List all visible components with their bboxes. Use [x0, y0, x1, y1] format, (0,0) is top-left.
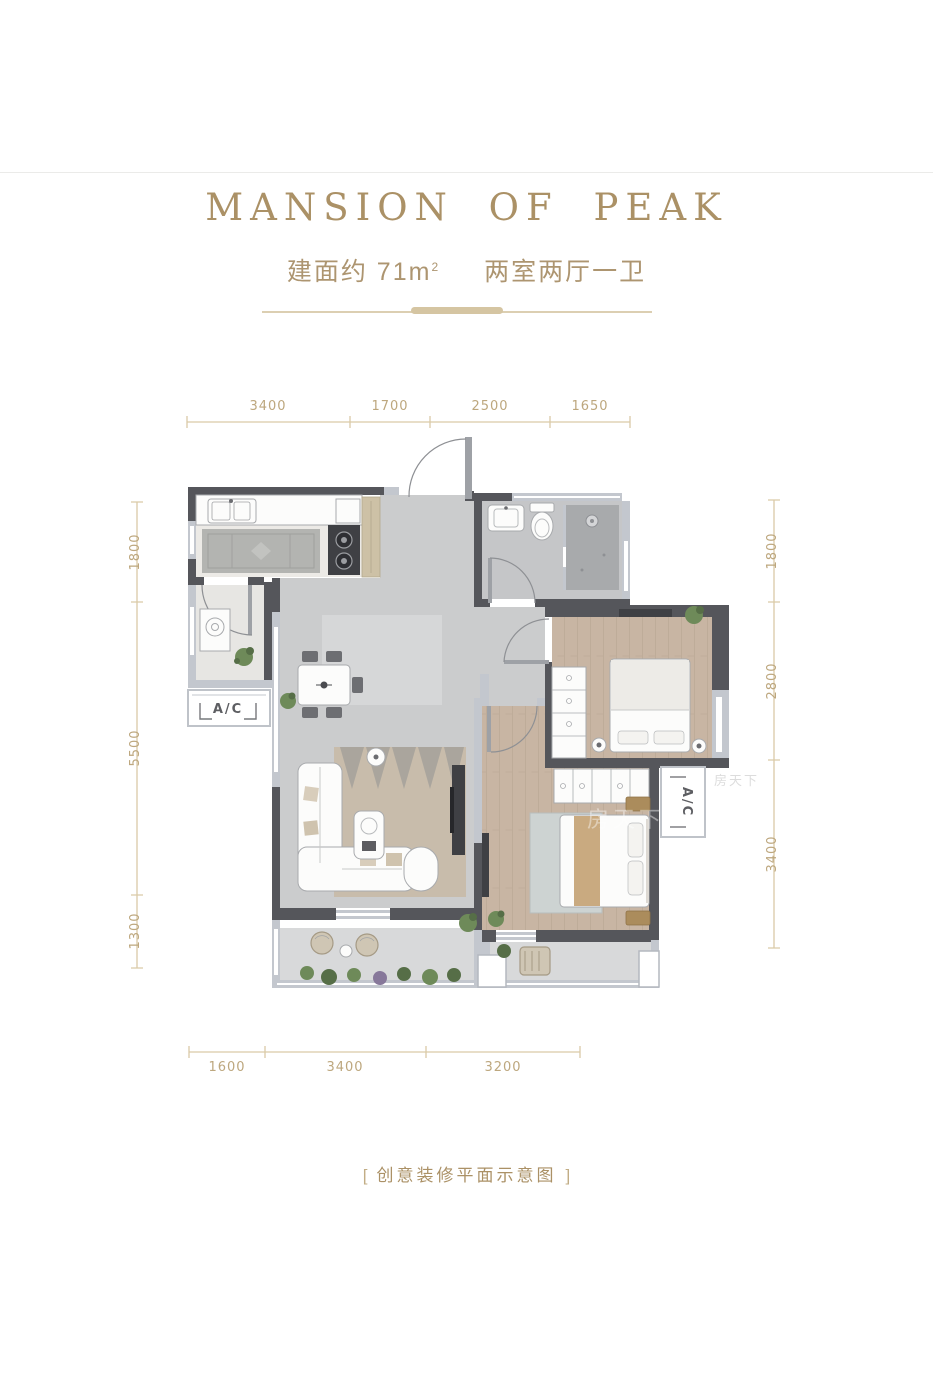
dim-label: 1650	[571, 399, 608, 414]
dining-chair	[352, 677, 363, 693]
throw-pillow	[303, 786, 319, 802]
balcony-pier	[478, 955, 506, 987]
side-table	[340, 945, 352, 957]
dining-chair	[326, 651, 342, 662]
area-label: 建面约 71m	[287, 258, 432, 286]
dim-label: 2800	[765, 662, 780, 699]
dim-label: 3400	[249, 399, 286, 414]
rooms-label: 两室两厅一卫	[484, 258, 646, 286]
ac-platform-right: A/C	[661, 767, 705, 837]
tv-console	[619, 609, 672, 617]
entry-door	[409, 437, 472, 499]
plan-subtitle: 建面约 71m2两室两厅一卫	[0, 252, 933, 288]
living-room	[298, 747, 466, 897]
dining-chair	[302, 707, 318, 718]
dim-label: 5500	[128, 729, 143, 766]
dining-chair	[302, 651, 318, 662]
throw-pillow	[303, 820, 318, 835]
coffee-table	[354, 811, 384, 859]
faucet-icon	[229, 499, 233, 503]
dim-label: 1800	[128, 533, 143, 570]
wardrobe	[552, 667, 586, 758]
master-balcony-floor	[490, 942, 651, 980]
dimension-right: 1800 2800 3400	[765, 500, 780, 948]
ac-left-label: A/C	[213, 702, 243, 717]
dining-chair	[326, 707, 342, 718]
nightstand	[626, 911, 650, 925]
throw-pillow	[386, 853, 402, 866]
balcony-pier	[639, 951, 659, 987]
floorplan-page: MANSION OF PEAK 建面约 71m2两室两厅一卫	[0, 0, 933, 1400]
caption-bracket-close: ]	[566, 1166, 571, 1185]
ac-right-label: A/C	[679, 787, 694, 817]
stove-icon	[328, 525, 360, 575]
area-superscript: 2	[431, 260, 440, 274]
dim-label: 3200	[484, 1060, 521, 1075]
caption-bracket-open: [	[363, 1166, 368, 1185]
dim-label: 3400	[765, 835, 780, 872]
dim-label: 1700	[371, 399, 408, 414]
page-title: MANSION OF PEAK	[0, 186, 933, 229]
floor-plan: A/C	[122, 395, 802, 1105]
washbasin-icon	[488, 505, 524, 531]
ac-platform-left: A/C	[188, 690, 270, 726]
toilet-icon	[530, 503, 554, 540]
kitchen	[196, 495, 380, 577]
top-divider	[0, 172, 933, 173]
watermark: 房天下	[714, 773, 759, 789]
caption-text: 创意装修平面示意图	[377, 1166, 557, 1185]
dimension-left: 1800 5500 1300	[128, 502, 143, 968]
bed	[610, 659, 690, 752]
dim-label: 1800	[765, 532, 780, 569]
dimension-top: 3400 1700 2500 1650	[187, 399, 630, 428]
tv-screen-icon	[450, 787, 454, 833]
plant-icon	[497, 944, 511, 958]
title-divider-accent	[411, 307, 503, 314]
tv-unit	[450, 765, 465, 855]
tv-icon	[482, 833, 489, 897]
dim-label: 2500	[471, 399, 508, 414]
counter-unit	[336, 499, 360, 523]
plan-caption: [创意装修平面示意图]	[0, 1161, 933, 1186]
watermark: 房天下	[587, 808, 665, 833]
dim-label: 3400	[326, 1060, 363, 1075]
dimension-bottom: 1600 3400 3200	[189, 1046, 580, 1075]
dim-label: 1600	[208, 1060, 245, 1075]
dim-label: 1300	[128, 912, 143, 949]
